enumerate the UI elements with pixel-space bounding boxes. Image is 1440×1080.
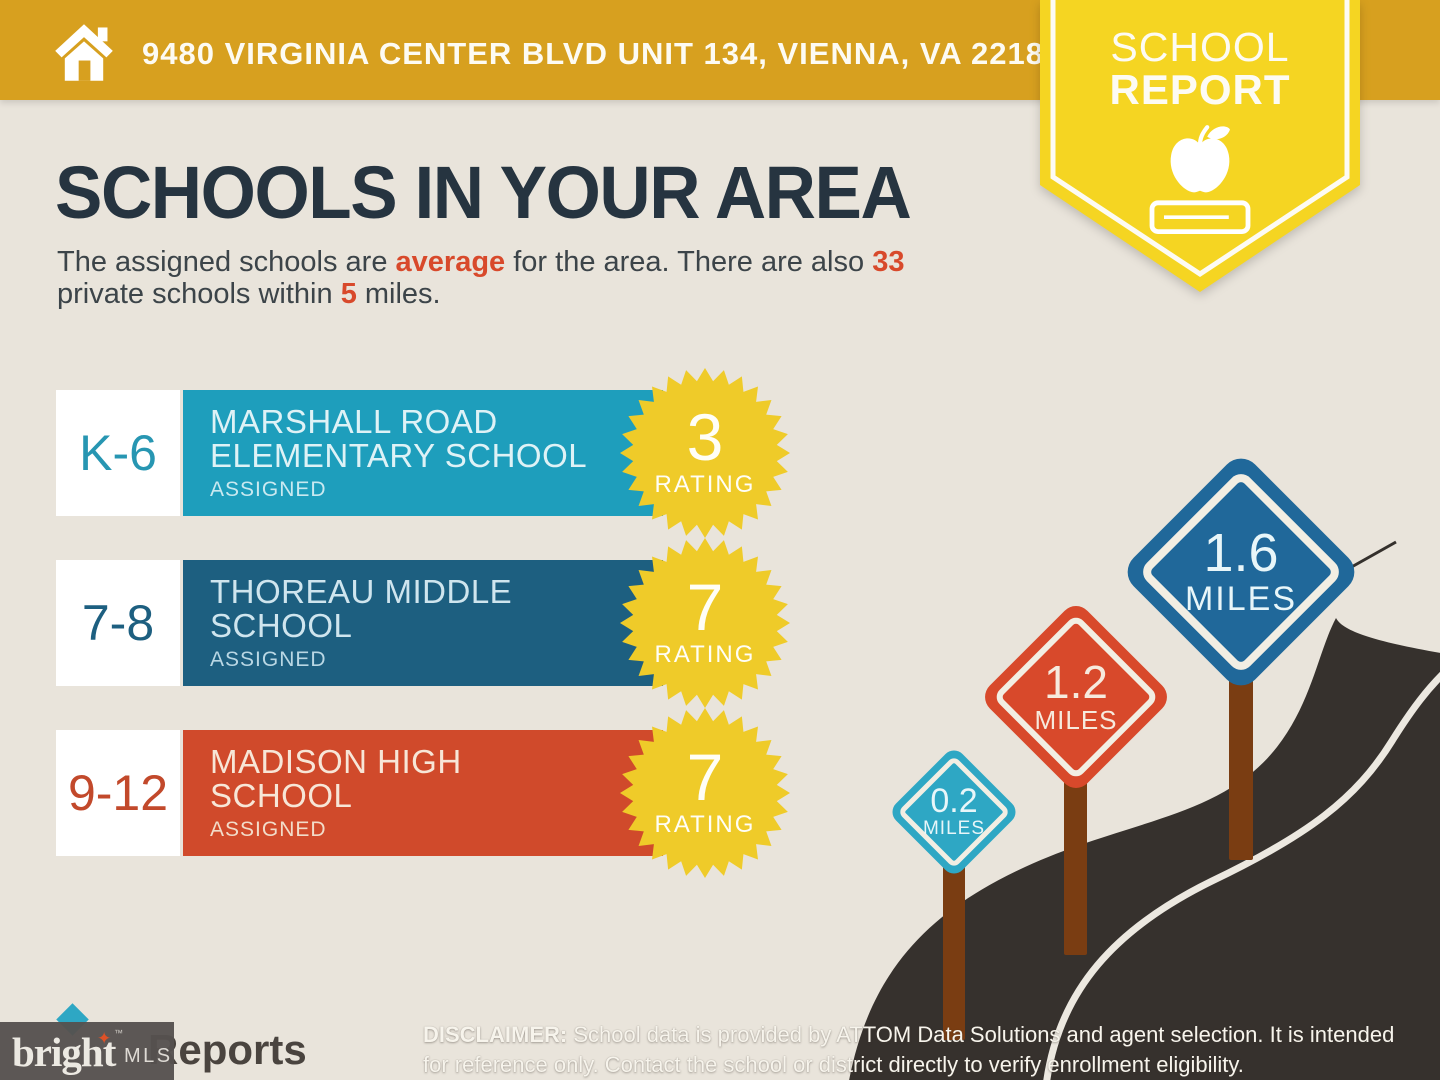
badge-title-line1: SCHOOL <box>1040 24 1360 71</box>
distance-unit: MILES <box>923 818 985 840</box>
badge-title-line2: REPORT <box>1040 66 1360 114</box>
school-row-middle: 7-8 THOREAU MIDDLE SCHOOL ASSIGNED 7 RAT… <box>56 560 663 686</box>
sign-post-near <box>943 860 965 1040</box>
sign-post-mid <box>1064 760 1087 955</box>
grade-range-box: 7-8 <box>56 560 180 686</box>
subtitle-highlight-radius: 5 <box>341 278 357 310</box>
distance-value: 1.2 <box>1044 659 1108 705</box>
disclaimer-line1: School data is provided by ATTOM Data So… <box>567 1022 1394 1047</box>
distance-unit: MILES <box>1185 580 1297 619</box>
star-icon: ✦ <box>97 1029 111 1049</box>
distance-unit: MILES <box>1034 705 1117 736</box>
assigned-label: ASSIGNED <box>210 818 663 842</box>
distance-sign-mid: 1.2 MILES <box>1007 628 1145 766</box>
school-row-high: 9-12 MADISON HIGH SCHOOL ASSIGNED 7 RATI… <box>56 730 663 856</box>
grade-range-box: K-6 <box>56 390 180 516</box>
assigned-label: ASSIGNED <box>210 648 663 672</box>
subtitle-highlight-average: average <box>396 246 506 278</box>
rating-starburst: 7 RATING <box>620 538 790 708</box>
subtitle-text: The assigned schools are <box>57 246 396 278</box>
school-name-line: SCHOOL <box>210 779 663 813</box>
grade-range-box: 9-12 <box>56 730 180 856</box>
rating-starburst: 3 RATING <box>620 368 790 538</box>
trademark-symbol: ™ <box>114 1028 123 1038</box>
school-name-line: MADISON HIGH <box>210 745 663 779</box>
home-icon <box>52 20 116 84</box>
bright-mls-logo: bright ✦ ™ MLS <box>0 1022 174 1080</box>
school-name: MADISON HIGH SCHOOL <box>210 745 663 813</box>
rating-label: RATING <box>655 641 756 669</box>
subtitle-text: miles. <box>357 278 441 310</box>
school-report-badge: SCHOOL REPORT <box>1040 0 1360 292</box>
subtitle-highlight-count: 33 <box>872 246 904 278</box>
page-subtitle: The assigned schools are average for the… <box>57 246 1037 310</box>
school-row-elementary: K-6 MARSHALL ROAD ELEMENTARY SCHOOL ASSI… <box>56 390 663 516</box>
disclaimer-label: DISCLAIMER: <box>423 1022 567 1047</box>
rating-label: RATING <box>655 471 756 499</box>
school-name-line: SCHOOL <box>210 609 663 643</box>
mls-wordmark: MLS <box>124 1045 173 1068</box>
school-name: MARSHALL ROAD ELEMENTARY SCHOOL <box>210 405 663 473</box>
distance-sign-near: 0.2 MILES <box>907 765 1001 859</box>
subtitle-text: private schools within <box>57 278 341 310</box>
distance-sign-far: 1.6 MILES <box>1155 486 1327 658</box>
assigned-label: ASSIGNED <box>210 478 663 502</box>
rating-value: 7 <box>687 747 724 807</box>
school-bar: MARSHALL ROAD ELEMENTARY SCHOOL ASSIGNED <box>183 390 663 516</box>
property-address: 9480 VIRGINIA CENTER BLVD UNIT 134, VIEN… <box>142 36 1062 72</box>
school-name-line: MARSHALL ROAD <box>210 405 663 439</box>
disclaimer-text: DISCLAIMER: School data is provided by A… <box>423 1020 1394 1080</box>
subtitle-text: for the area. There are also <box>505 246 872 278</box>
grade-range: K-6 <box>79 424 157 482</box>
grade-range: 7-8 <box>82 594 154 652</box>
rating-label: RATING <box>655 811 756 839</box>
rating-value: 3 <box>687 407 724 467</box>
school-bar: THOREAU MIDDLE SCHOOL ASSIGNED <box>183 560 663 686</box>
school-report-page: 0.2 MILES 1.2 MILES 1.6 MILES 9480 VIRGI… <box>0 0 1440 1080</box>
grade-range: 9-12 <box>68 764 168 822</box>
school-name-line: ELEMENTARY SCHOOL <box>210 439 663 473</box>
rating-value: 7 <box>687 577 724 637</box>
page-title: SCHOOLS IN YOUR AREA <box>55 150 910 235</box>
disclaimer-line2: for reference only. Contact the school o… <box>423 1050 1394 1080</box>
school-bar: MADISON HIGH SCHOOL ASSIGNED <box>183 730 663 856</box>
distance-value: 0.2 <box>930 784 977 818</box>
rating-starburst: 7 RATING <box>620 708 790 878</box>
school-name-line: THOREAU MIDDLE <box>210 575 663 609</box>
distance-value: 1.6 <box>1203 526 1278 580</box>
school-name: THOREAU MIDDLE SCHOOL <box>210 575 663 643</box>
